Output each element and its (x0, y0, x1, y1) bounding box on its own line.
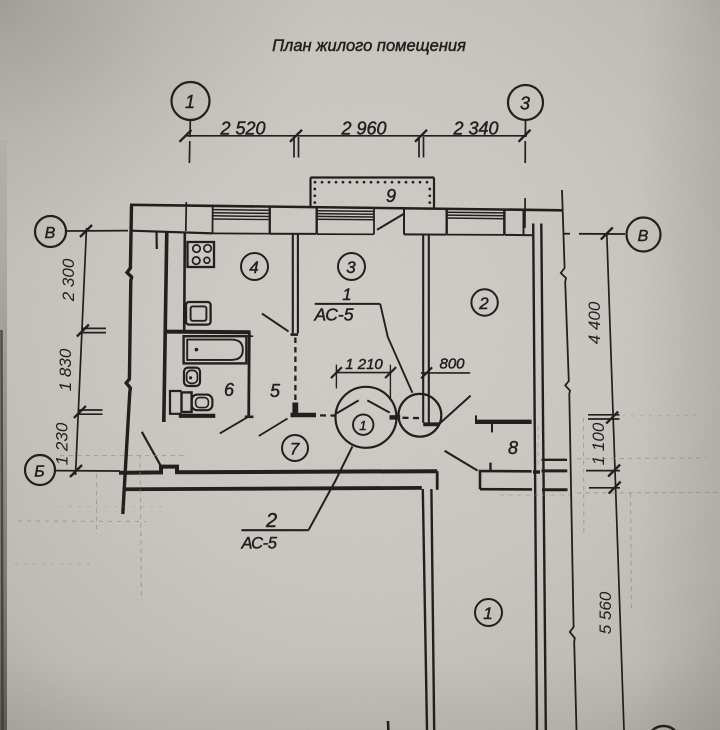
svg-text:8: 8 (508, 438, 518, 458)
svg-text:4: 4 (249, 258, 258, 277)
svg-text:2 520: 2 520 (219, 119, 265, 139)
svg-text:2: 2 (265, 510, 277, 532)
svg-text:В: В (638, 228, 649, 245)
svg-text:1: 1 (185, 92, 195, 112)
svg-text:3: 3 (520, 94, 530, 114)
svg-text:2 300: 2 300 (59, 258, 78, 302)
svg-text:1 830: 1 830 (56, 348, 75, 391)
svg-text:1 230: 1 230 (53, 422, 72, 465)
svg-text:1 210: 1 210 (345, 356, 383, 373)
svg-text:1: 1 (483, 604, 492, 623)
svg-text:В: В (45, 225, 56, 242)
svg-text:2 960: 2 960 (340, 119, 386, 139)
svg-text:АС-5: АС-5 (314, 305, 354, 325)
svg-text:Б: Б (34, 464, 44, 481)
svg-text:9: 9 (386, 186, 396, 206)
svg-text:АС-5: АС-5 (240, 535, 277, 553)
svg-text:4 400: 4 400 (585, 301, 604, 344)
svg-text:2: 2 (478, 294, 489, 313)
svg-text:1: 1 (359, 418, 366, 433)
svg-text:7: 7 (290, 440, 300, 459)
svg-text:1: 1 (342, 286, 351, 304)
svg-text:5 560: 5 560 (596, 591, 615, 634)
svg-text:3: 3 (346, 258, 356, 277)
svg-text:2 340: 2 340 (452, 119, 498, 139)
svg-text:800: 800 (439, 356, 465, 373)
svg-text:План жилого помещения: План жилого помещения (272, 37, 466, 55)
svg-text:6: 6 (224, 380, 235, 400)
svg-text:5: 5 (270, 381, 281, 401)
